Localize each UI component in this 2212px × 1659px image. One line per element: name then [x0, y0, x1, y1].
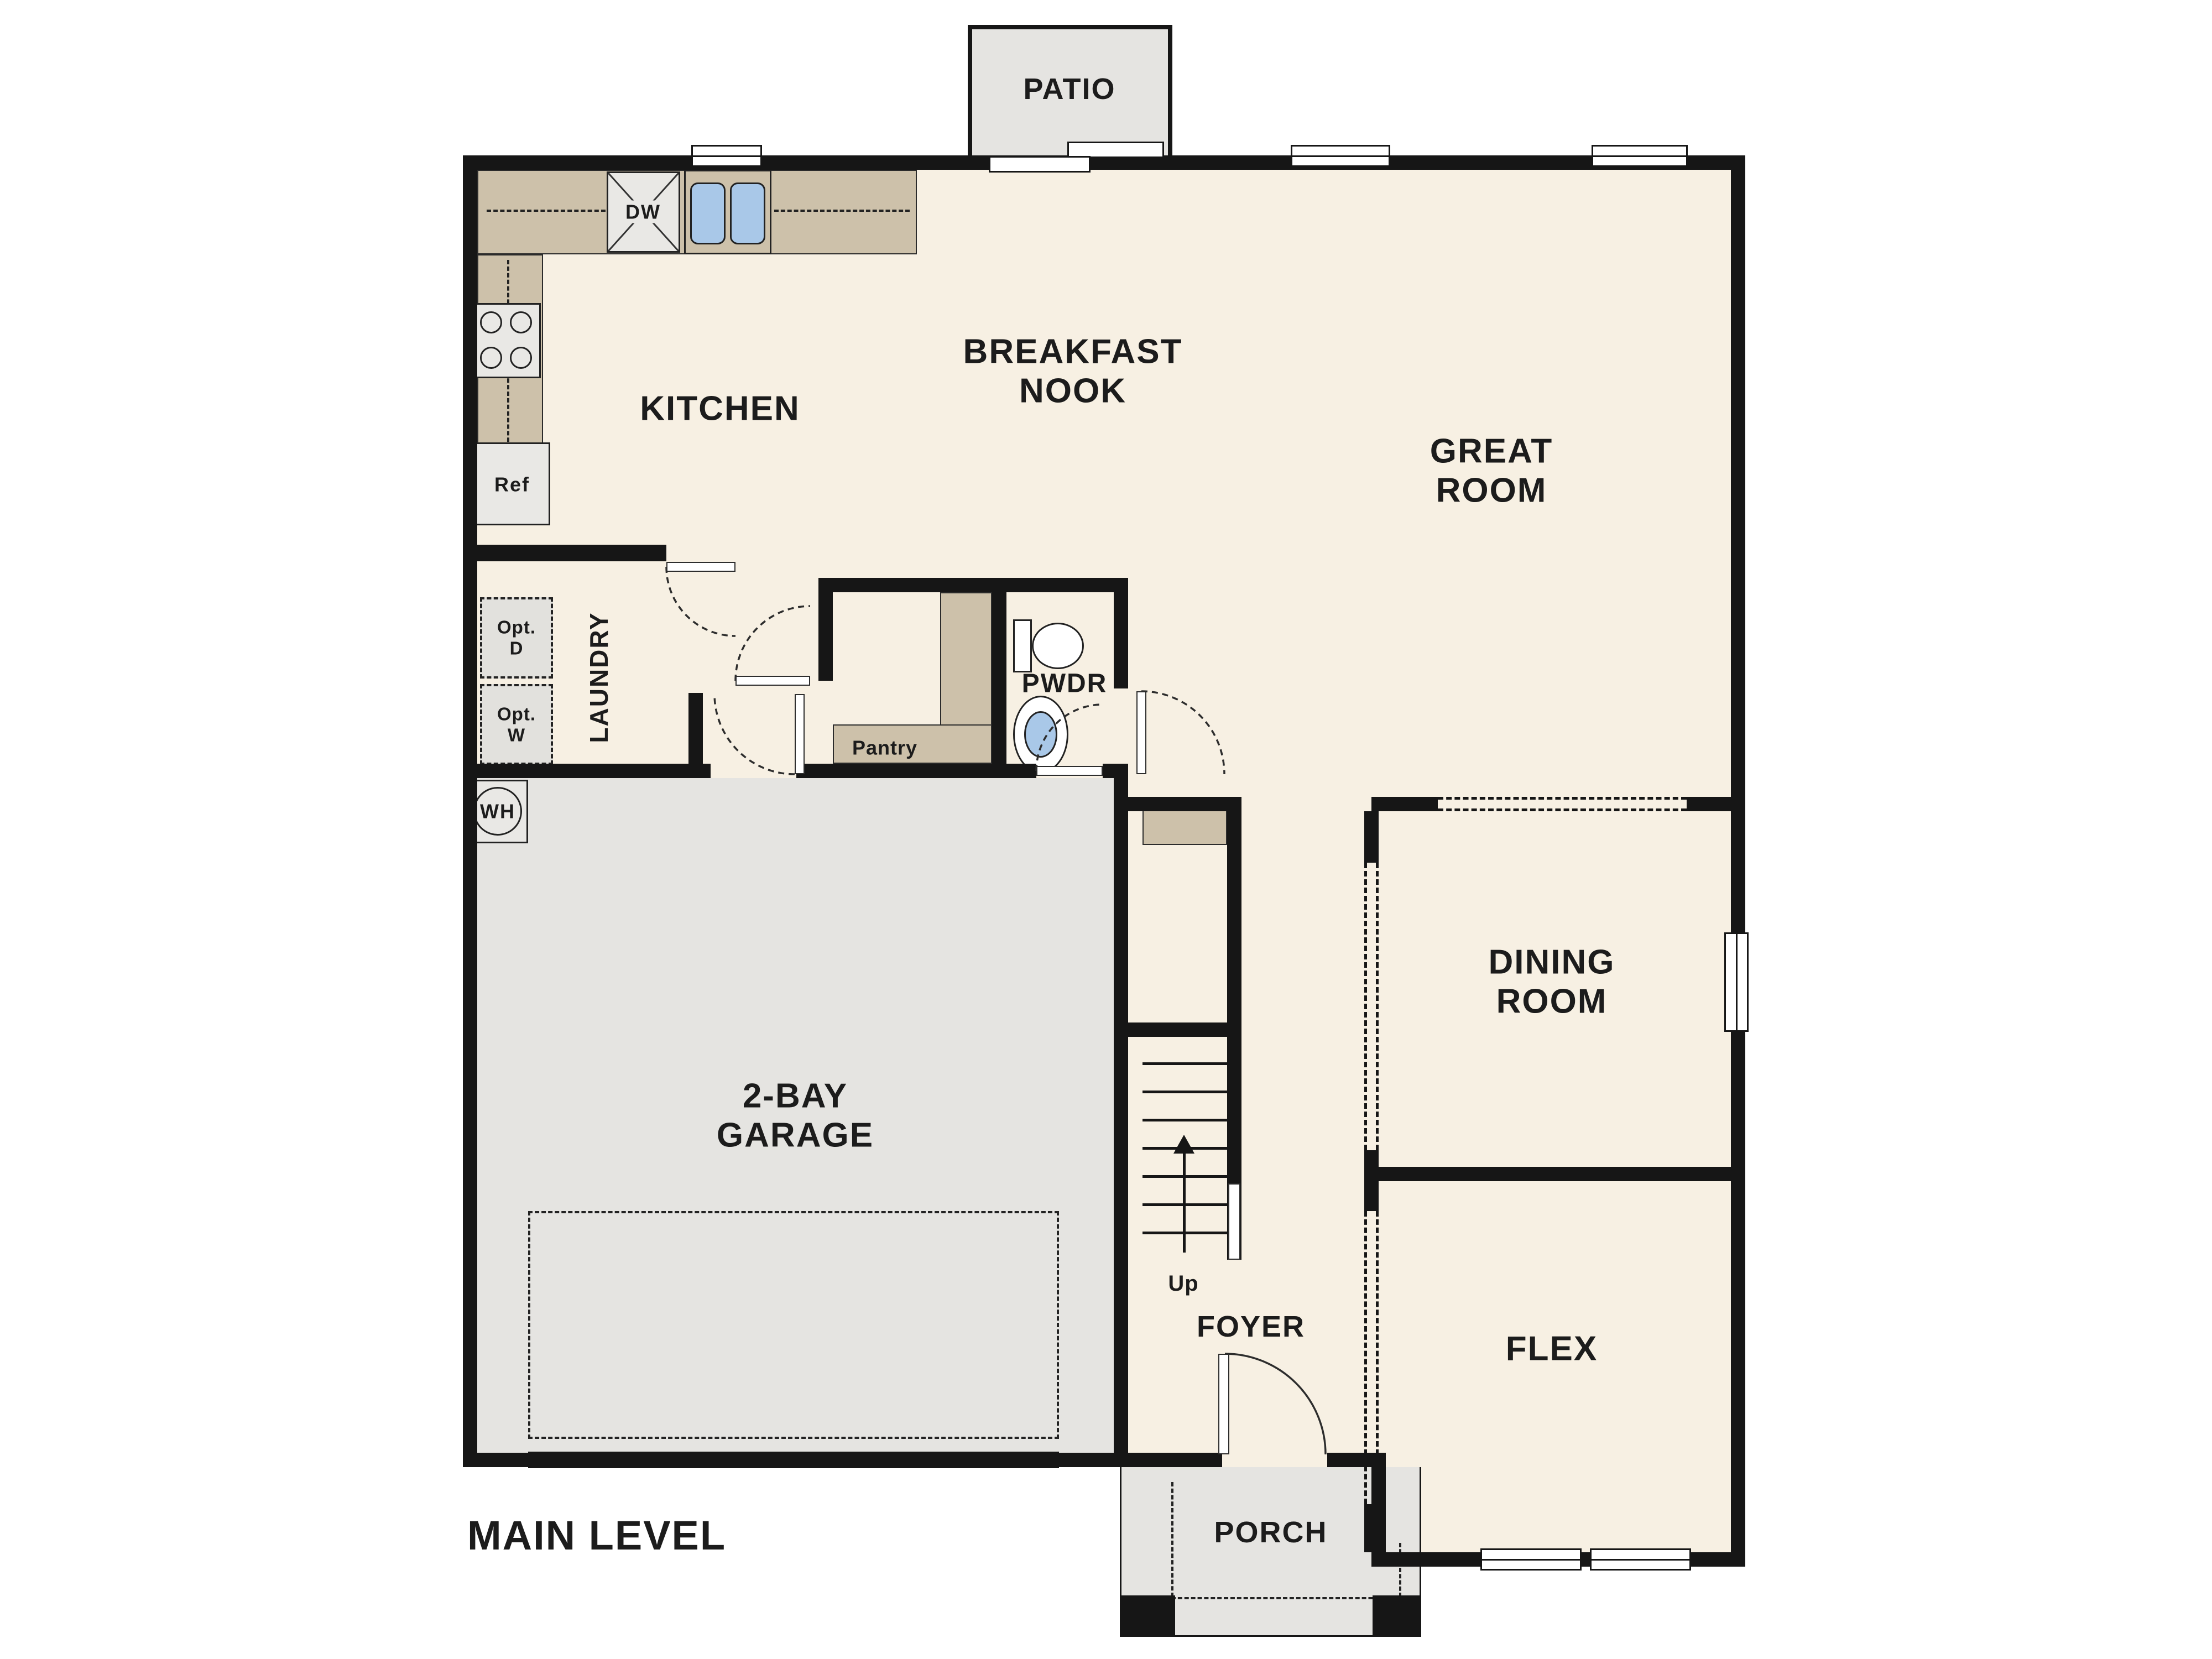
pwdr-label: PWDR: [1022, 669, 1108, 700]
optional-washer-label: Opt. W: [497, 703, 536, 745]
sink-bowl-left: [690, 182, 726, 244]
flex-label: FLEX: [1506, 1330, 1598, 1369]
wall-pantry-bottom: [796, 764, 1036, 778]
wall-laundry-right-stub: [688, 693, 703, 778]
stairs-up-arrow-icon: [1173, 1135, 1194, 1154]
garage-hall-door-swing-icon: [714, 694, 795, 774]
flex-floor-lower: [1386, 1456, 1731, 1552]
stair-wall-door-slot: [1228, 1183, 1240, 1260]
wall-right: [1731, 155, 1745, 1567]
dining-left-dash-wall: [1364, 863, 1379, 1150]
laundry-door-swing-icon: [666, 567, 735, 636]
kitchen-label: KITCHEN: [640, 390, 800, 429]
window-flex-bottom-right: [1590, 1548, 1691, 1571]
wall-pwdr-bottom-stub: [1103, 764, 1128, 778]
window-kitchen-sink: [691, 145, 762, 167]
dining-opening-dash: [1438, 797, 1687, 811]
garage-label: 2-BAY GARAGE: [717, 1077, 874, 1155]
main-level-title: MAIN LEVEL: [467, 1512, 726, 1559]
wall-foyer-bottom-right: [1327, 1453, 1386, 1467]
wall-garage-top: [463, 764, 711, 778]
optional-dryer-label: Opt. D: [497, 617, 536, 658]
garage-hall-door-leaf: [795, 694, 805, 774]
stove-burner: [480, 311, 502, 333]
porch-dash-bottom: [1171, 1597, 1399, 1599]
up-label: Up: [1168, 1271, 1198, 1297]
front-door-swing-icon: [1225, 1354, 1326, 1454]
dining-room-label: DINING ROOM: [1489, 943, 1615, 1021]
stove-box: [473, 303, 541, 378]
wall-laundry-top: [463, 545, 666, 561]
window-nook-top: [1291, 145, 1390, 167]
pantry-label: Pantry: [852, 736, 917, 759]
wall-stair-closet-top: [1128, 797, 1241, 811]
patio-slider-leaf-left: [989, 156, 1091, 173]
foyer-label: FOYER: [1197, 1310, 1305, 1344]
dishwasher-label: DW: [623, 200, 663, 223]
porch-post-right: [1373, 1595, 1421, 1637]
stove-burner: [510, 347, 532, 369]
wall-left: [463, 155, 477, 1467]
window-dining-right: [1724, 932, 1749, 1032]
stove-burner: [480, 347, 502, 369]
hall-pantry-door-swing-icon: [735, 606, 810, 681]
wall-dining-stub-top-right: [1687, 797, 1731, 811]
refrigerator-label: Ref: [494, 473, 530, 495]
wall-stair-closet-mid: [1128, 1022, 1241, 1037]
porch-dash-right: [1399, 1543, 1401, 1597]
wall-foyer-bottom-left: [1128, 1453, 1222, 1467]
wall-pantry-right: [992, 592, 1006, 764]
wall-garage-bottom: [463, 1453, 1128, 1467]
patio-label: PATIO: [1024, 72, 1116, 107]
toilet-bowl: [1032, 623, 1084, 669]
window-greatroom-top: [1592, 145, 1688, 167]
stair-closet-shelf: [1142, 808, 1227, 845]
great-room-label: GREAT ROOM: [1430, 432, 1553, 510]
porch-label: PORCH: [1214, 1516, 1327, 1550]
garage-door-clearance-dash: [528, 1211, 1059, 1439]
stove-burner: [510, 311, 532, 333]
pwdr-door-swing-icon: [1036, 705, 1103, 771]
wall-pantry-pwdr-top: [818, 578, 1128, 592]
upper-cabinet-dash-right: [774, 210, 910, 212]
sink-bowl-right: [730, 182, 765, 244]
laundry-label: LAUNDRY: [585, 612, 613, 743]
front-door-threshold: [1222, 1453, 1327, 1467]
wall-flex-left-stub-upper: [1364, 1181, 1379, 1211]
wall-dining-left-stub-upper: [1364, 811, 1379, 863]
wall-foyer-left: [1114, 778, 1128, 1467]
stairs-up-arrow-line: [1183, 1153, 1186, 1253]
stair-closet-door-swing-icon: [1141, 691, 1224, 774]
upper-cabinet-dash-left: [487, 210, 606, 212]
wall-pantry-left-stub: [818, 592, 833, 681]
water-heater-label: WH: [480, 800, 515, 822]
wall-dining-stub-top-left: [1371, 797, 1438, 811]
porch-post-left: [1120, 1595, 1175, 1637]
window-flex-bottom-left: [1480, 1548, 1582, 1571]
porch-dash-left: [1171, 1482, 1173, 1597]
wall-flex-left-stub-lower: [1364, 1504, 1379, 1552]
wall-dining-bottom: [1371, 1167, 1745, 1181]
toilet-tank: [1013, 619, 1032, 672]
breakfast-nook-label: BREAKFAST NOOK: [963, 332, 1183, 410]
wall-pwdr-right: [1114, 578, 1128, 688]
